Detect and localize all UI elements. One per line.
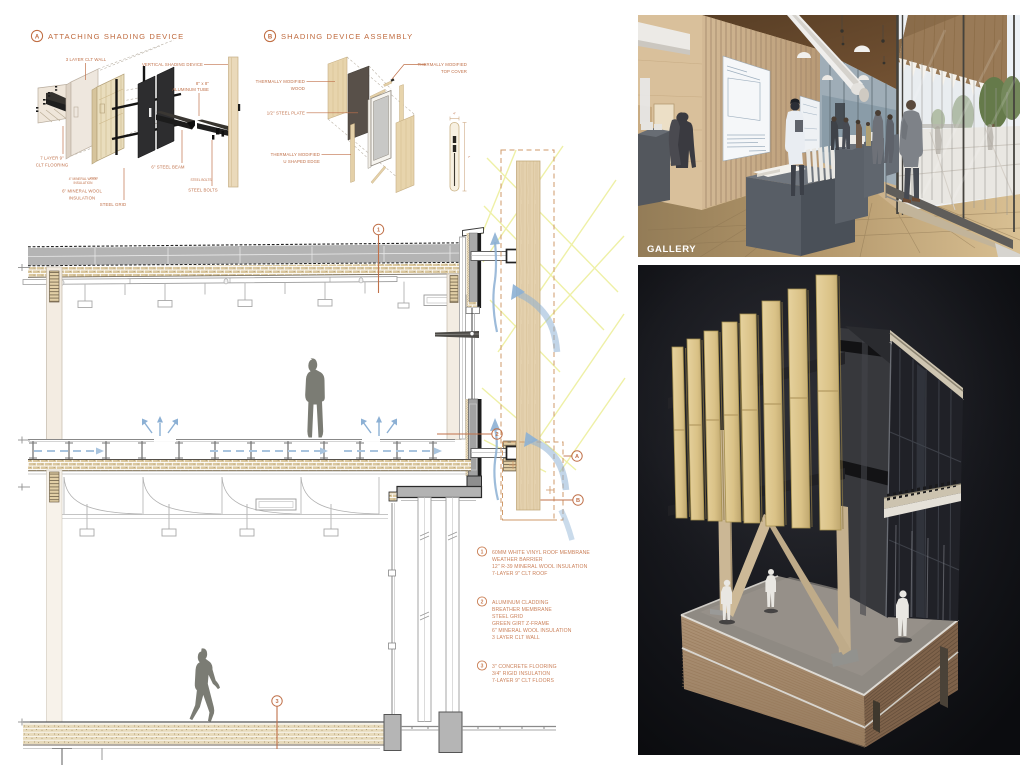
svg-text:GREEN GIRT Z-FRAME: GREEN GIRT Z-FRAME [492,621,550,627]
svg-text:3: 3 [275,699,278,705]
svg-text:GALLERY: GALLERY [647,244,696,255]
svg-text:TOP COVER: TOP COVER [441,69,467,74]
svg-text:4": 4" [453,112,456,116]
svg-text:12" R-39 MINERAL WOOL INSULAT: 12" R-39 MINERAL WOOL INSULATION [492,564,588,570]
svg-text:1: 1 [481,550,484,556]
svg-text:7-LAYER 9" CLT ROOF: 7-LAYER 9" CLT ROOF [492,571,548,577]
svg-text:3 LAYER CLT WALL: 3 LAYER CLT WALL [66,57,107,62]
svg-text:WEATHER BARRIER: WEATHER BARRIER [492,557,543,563]
svg-text:2: 2 [481,600,484,606]
svg-text:ATTACHING SHADING DEVICE: ATTACHING SHADING DEVICE [48,32,184,41]
svg-text:60MM WHITE VINYL ROOF MEMBRANE: 60MM WHITE VINYL ROOF MEMBRANE [492,550,590,556]
svg-text:THERMALLY MODIFIED: THERMALLY MODIFIED [271,152,320,157]
svg-text:6" STEEL BEAM: 6" STEEL BEAM [151,165,185,170]
svg-text:6" MINERAL WOOL: 6" MINERAL WOOL [62,189,102,194]
svg-text:STEEL BOLTS: STEEL BOLTS [190,178,211,182]
svg-text:7-LAYER 9" CLT FLOORS: 7-LAYER 9" CLT FLOORS [492,678,554,684]
svg-text:THERMALLY MODIFIED: THERMALLY MODIFIED [256,79,305,84]
svg-text:3 LAYER CLT WALL: 3 LAYER CLT WALL [492,635,540,641]
svg-text:3/4" RIGID INSULATION: 3/4" RIGID INSULATION [492,671,550,677]
svg-text:INSULATION: INSULATION [74,181,94,185]
svg-text:3" CONCRETE FLOORING: 3" CONCRETE FLOORING [492,664,557,670]
svg-text:WOOD: WOOD [291,86,305,91]
svg-text:ALUMINUM CLADDING: ALUMINUM CLADDING [492,600,549,606]
svg-text:7': 7' [468,155,471,159]
svg-text:BREATHER MEMBRANE: BREATHER MEMBRANE [492,607,552,613]
svg-text:ALUMINUM TUBE: ALUMINUM TUBE [172,87,209,92]
svg-text:7 LAYER 9": 7 LAYER 9" [40,156,64,161]
svg-text:INSULATION: INSULATION [69,196,95,201]
svg-text:2: 2 [495,432,498,438]
svg-text:STEEL GRID: STEEL GRID [100,202,126,207]
svg-text:3: 3 [481,664,484,670]
svg-text:8" x 8": 8" x 8" [196,81,209,86]
svg-text:CLT FLOORING: CLT FLOORING [36,163,69,168]
svg-text:1/2" STEEL PLATE: 1/2" STEEL PLATE [267,111,305,116]
svg-text:B: B [268,35,273,41]
svg-text:6" MINERAL WOOL INSULATION: 6" MINERAL WOOL INSULATION [492,628,572,634]
svg-text:STEEL BOLTS: STEEL BOLTS [188,188,218,193]
svg-text:STEEL GRID: STEEL GRID [492,614,523,620]
svg-text:A: A [35,35,40,41]
svg-text:SHADING DEVICE ASSEMBLY: SHADING DEVICE ASSEMBLY [281,32,413,41]
svg-text:VERTICAL SHADING DEVICE: VERTICAL SHADING DEVICE [142,62,203,67]
svg-text:B: B [576,498,580,504]
svg-text:A: A [575,454,579,460]
svg-text:1: 1 [377,228,380,234]
svg-text:U SHAPED EDGE: U SHAPED EDGE [283,159,320,164]
